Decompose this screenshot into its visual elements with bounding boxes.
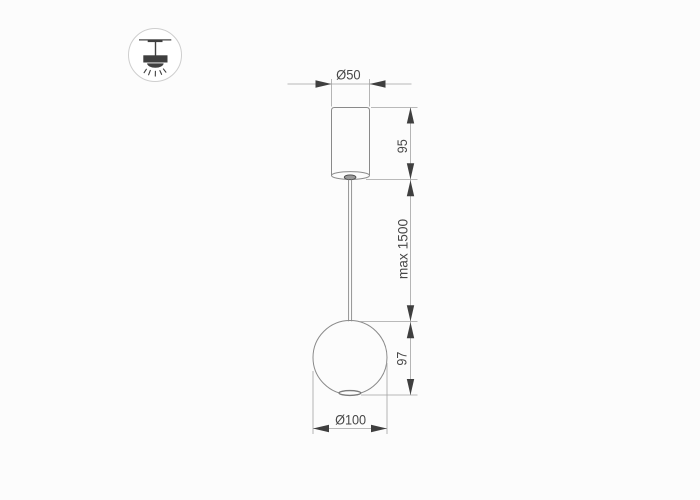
svg-text:95: 95 <box>394 139 410 153</box>
svg-text:Ø100: Ø100 <box>335 412 366 427</box>
svg-text:97: 97 <box>394 352 410 366</box>
svg-text:max 1500: max 1500 <box>394 219 410 280</box>
svg-text:Ø50: Ø50 <box>336 67 360 82</box>
